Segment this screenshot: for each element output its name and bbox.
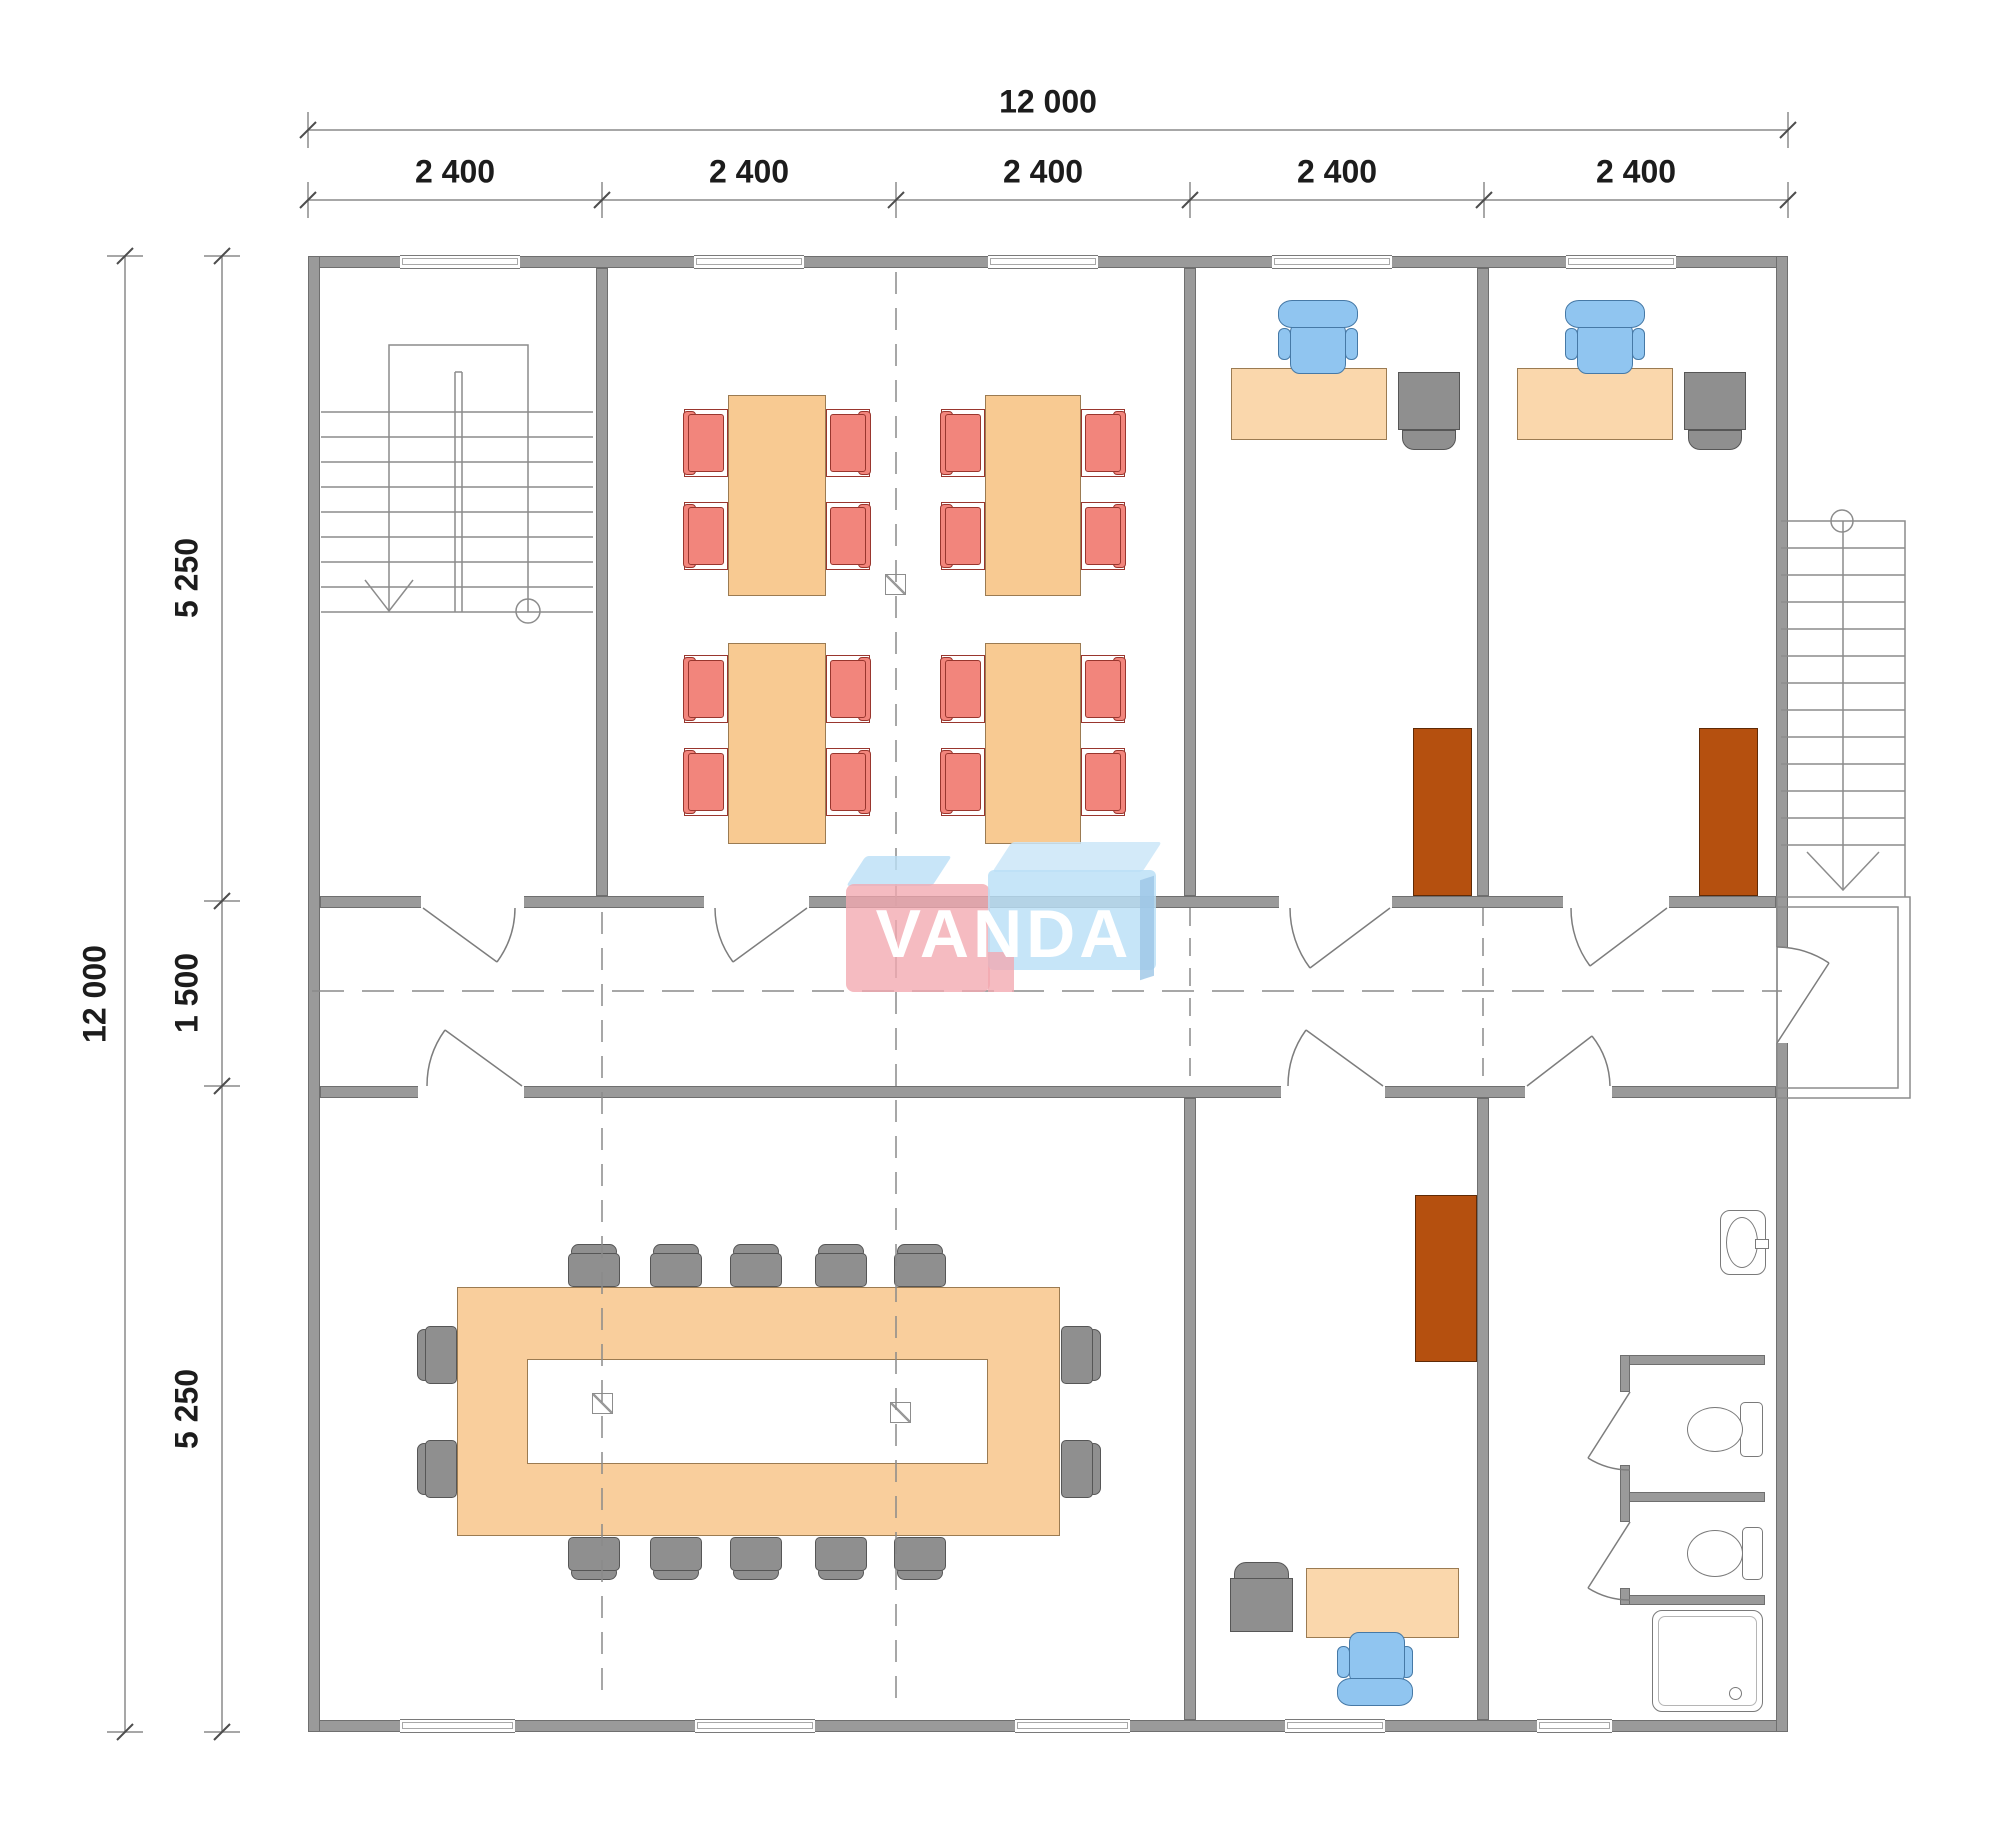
conference-chair <box>417 1326 457 1384</box>
dim-top-seg-5: 2 400 <box>1596 154 1676 191</box>
logo-lid-right <box>992 842 1161 872</box>
office2-side-unit <box>1684 372 1746 450</box>
dim-top-seg-4: 2 400 <box>1297 154 1377 191</box>
dim-left-seg-3: 5 250 <box>169 1369 206 1449</box>
red-chair <box>684 409 728 477</box>
red-chair <box>684 502 728 570</box>
door-office1 <box>1290 908 1390 968</box>
wall-stall-stub-3 <box>1620 1588 1630 1605</box>
door-gap-classroom <box>704 895 809 909</box>
red-chair <box>826 655 870 723</box>
door-office3 <box>1288 1030 1383 1086</box>
stairs-down-arrow <box>365 580 413 611</box>
window-south-1 <box>400 1719 515 1733</box>
office3-cabinet <box>1415 1195 1477 1362</box>
door-gap-entrance <box>1775 947 1789 1043</box>
sink <box>1720 1210 1766 1275</box>
conference-chair <box>815 1244 867 1288</box>
classroom-table-2 <box>985 395 1081 596</box>
wall-stall-stub-1 <box>1620 1355 1630 1392</box>
door-stairwell <box>423 908 515 962</box>
conference-chair <box>417 1440 457 1498</box>
red-chair <box>684 748 728 816</box>
door-gap-office1 <box>1279 895 1392 909</box>
conference-chair <box>568 1244 620 1288</box>
wall-stall-1 <box>1620 1355 1765 1365</box>
column-symbol <box>885 574 906 595</box>
door-office2 <box>1571 908 1667 966</box>
toilet-2-tank <box>1742 1527 1763 1580</box>
office3-desk <box>1306 1568 1459 1638</box>
logo-lid-left <box>846 856 951 886</box>
conference-chair <box>568 1536 620 1580</box>
conference-chair <box>1061 1326 1101 1384</box>
door-gap-stairwell <box>421 895 524 909</box>
toilet-2-bowl <box>1687 1530 1743 1577</box>
wall-conference-office3 <box>1184 1098 1196 1720</box>
wall-exterior-west <box>308 256 320 1732</box>
red-chair <box>1081 409 1125 477</box>
shower-tray <box>1652 1610 1763 1712</box>
conference-chair <box>894 1536 946 1580</box>
office3-chair <box>1337 1638 1413 1706</box>
conference-chair <box>650 1244 702 1288</box>
wall-office3-washroom <box>1477 1098 1489 1720</box>
conference-chair <box>730 1536 782 1580</box>
door-gap-office2 <box>1563 895 1669 909</box>
toilet-1-bowl <box>1687 1407 1743 1452</box>
door-classroom <box>715 908 807 962</box>
window-north-1 <box>400 255 520 269</box>
window-north-5 <box>1566 255 1676 269</box>
wall-stair-classroom <box>596 268 608 896</box>
entrance-landing <box>1777 897 1910 1098</box>
vanda-logo-text: VANDA <box>858 900 1150 968</box>
window-north-2 <box>694 255 804 269</box>
dim-left-overall: 12 000 <box>77 945 114 1043</box>
dim-left-seg-1: 5 250 <box>169 538 206 618</box>
vanda-watermark: VANDA <box>840 838 1170 998</box>
window-north-4 <box>1272 255 1392 269</box>
window-south-4 <box>1285 1719 1385 1733</box>
wall-stall-stub-2 <box>1620 1465 1630 1522</box>
office1-desk <box>1231 368 1387 440</box>
red-chair <box>941 409 985 477</box>
red-chair <box>826 748 870 816</box>
column-symbol <box>592 1393 613 1414</box>
red-chair <box>1081 655 1125 723</box>
conference-chair <box>815 1536 867 1580</box>
stairwell-internal <box>321 345 593 623</box>
red-chair <box>941 748 985 816</box>
red-chair <box>1081 502 1125 570</box>
dim-top-seg-2: 2 400 <box>709 154 789 191</box>
classroom-table-1 <box>728 395 826 596</box>
wall-stall-3 <box>1620 1595 1765 1605</box>
door-gap-office3 <box>1281 1085 1385 1099</box>
dim-left-seg-2: 1 500 <box>169 953 206 1033</box>
door-gap-washroom <box>1525 1085 1612 1099</box>
red-chair <box>826 502 870 570</box>
red-chair <box>684 655 728 723</box>
classroom-table-3 <box>728 643 826 844</box>
office2-desk <box>1517 368 1673 440</box>
floor-plan: 12 000 2 400 2 400 2 400 2 400 2 400 12 … <box>0 0 2000 1848</box>
wall-classroom-office1 <box>1184 268 1196 896</box>
office2-chair <box>1565 300 1645 374</box>
office1-side-unit <box>1398 372 1460 450</box>
office3-side-unit <box>1230 1562 1293 1632</box>
classroom-table-4 <box>985 643 1081 844</box>
dim-top-overall: 12 000 <box>999 84 1097 121</box>
toilet-1-tank <box>1740 1402 1763 1457</box>
door-washroom <box>1527 1036 1610 1086</box>
red-chair <box>941 502 985 570</box>
red-chair <box>826 409 870 477</box>
red-chair <box>1081 748 1125 816</box>
window-north-3 <box>988 255 1098 269</box>
column-symbol <box>890 1402 911 1423</box>
conference-chair <box>894 1244 946 1288</box>
window-south-5 <box>1537 1719 1612 1733</box>
red-chair <box>941 655 985 723</box>
office1-chair <box>1278 300 1358 374</box>
door-conference <box>427 1030 522 1086</box>
wall-stall-2 <box>1620 1492 1765 1502</box>
conference-chair <box>730 1244 782 1288</box>
dim-top-seg-1: 2 400 <box>415 154 495 191</box>
door-stall-1 <box>1588 1392 1630 1470</box>
office1-cabinet <box>1413 728 1472 896</box>
window-south-2 <box>695 1719 815 1733</box>
dim-top-seg-3: 2 400 <box>1003 154 1083 191</box>
conference-chair <box>1061 1440 1101 1498</box>
stairs-external <box>1777 510 1910 1098</box>
door-gap-conference <box>418 1085 524 1099</box>
office2-cabinet <box>1699 728 1758 896</box>
stairs-down-arrow <box>1807 852 1879 890</box>
conference-chair <box>650 1536 702 1580</box>
wall-office1-office2 <box>1477 268 1489 896</box>
window-south-3 <box>1015 1719 1130 1733</box>
